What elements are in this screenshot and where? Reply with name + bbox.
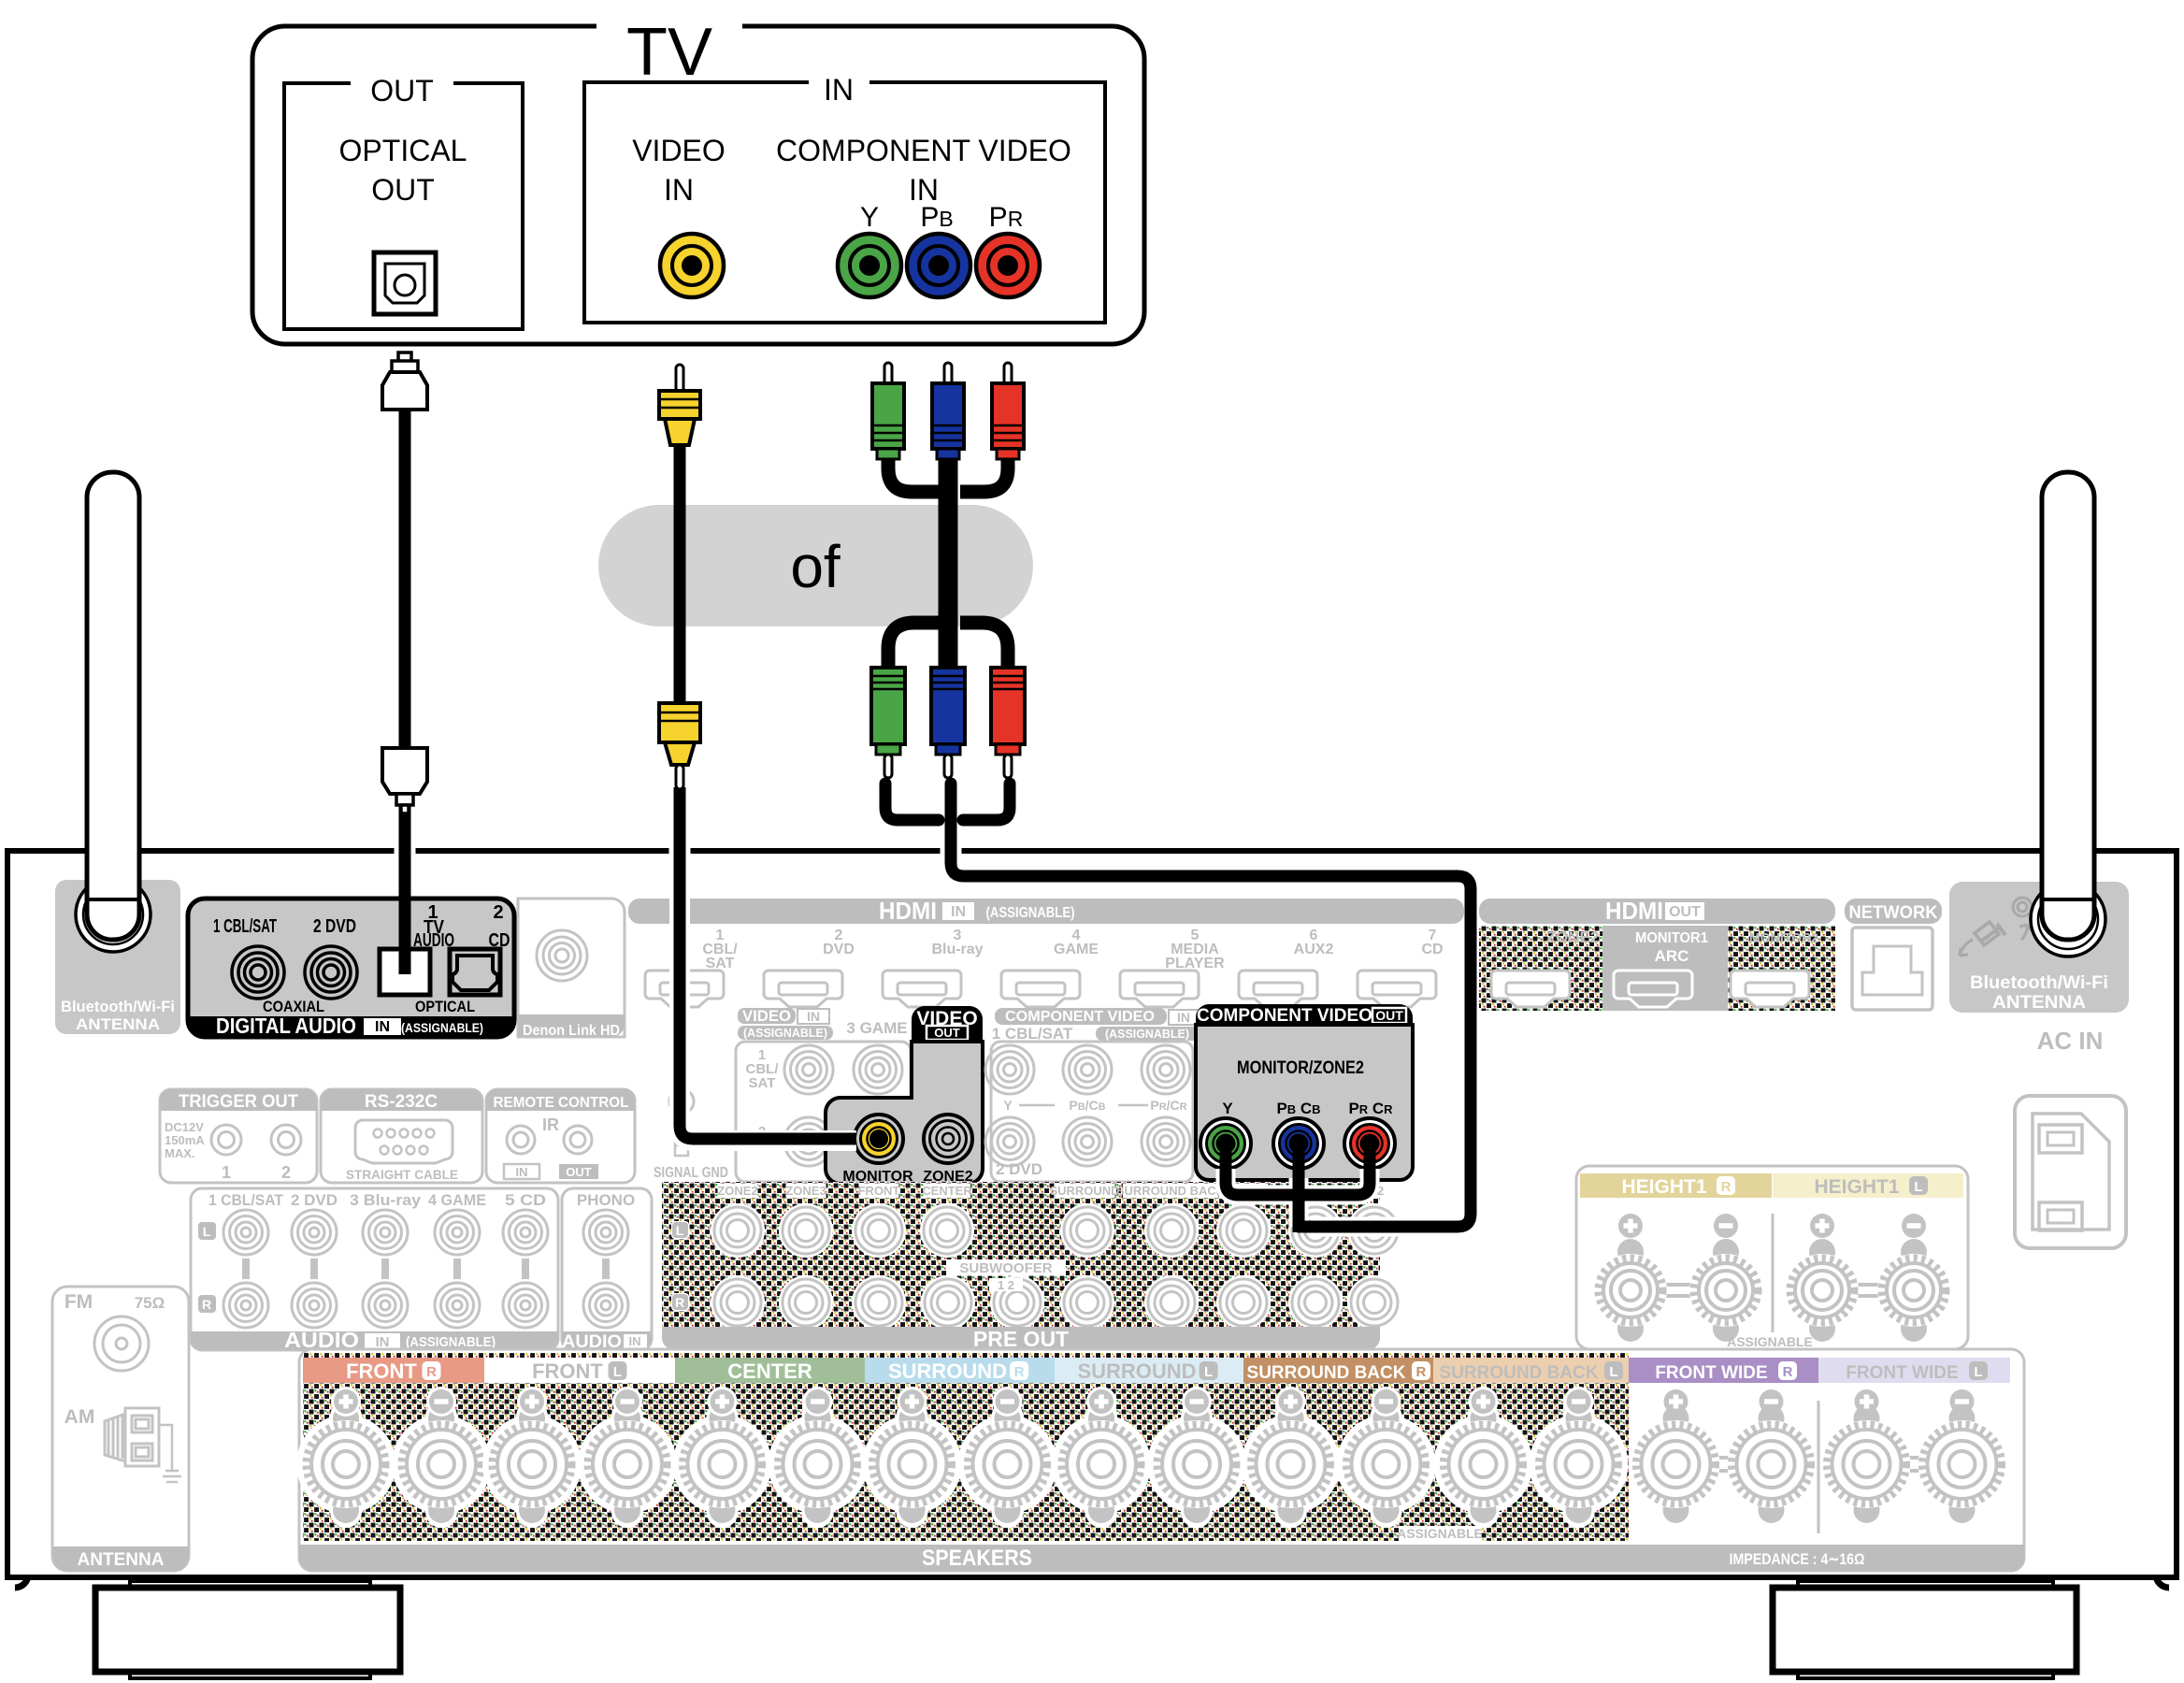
svg-text:HEIGHT1: HEIGHT1 xyxy=(1621,1176,1706,1198)
svg-text:2: 2 xyxy=(281,1163,291,1182)
svg-text:(ASSIGNABLE): (ASSIGNABLE) xyxy=(1105,1027,1189,1041)
svg-text:OPTICAL: OPTICAL xyxy=(415,998,475,1015)
svg-text:(ASSIGNABLE): (ASSIGNABLE) xyxy=(406,1334,496,1350)
svg-text:IN: IN xyxy=(664,173,694,207)
svg-text:1 CBL/SAT: 1 CBL/SAT xyxy=(213,916,277,937)
svg-text:L: L xyxy=(1609,1364,1617,1380)
svg-text:(ASSIGNABLE): (ASSIGNABLE) xyxy=(743,1026,827,1040)
svg-text:OUT: OUT xyxy=(566,1165,592,1179)
svg-text:Y: Y xyxy=(1003,1098,1013,1113)
svg-text:FRONT WIDE: FRONT WIDE xyxy=(1655,1363,1767,1383)
svg-text:R: R xyxy=(1783,1364,1793,1380)
svg-text:R: R xyxy=(675,1295,684,1310)
svg-text:CENTER: CENTER xyxy=(727,1359,812,1383)
svg-text:Bluetooth/Wi-Fi: Bluetooth/Wi-Fi xyxy=(1970,973,2108,993)
svg-text:SURROUND: SURROUND xyxy=(1049,1184,1119,1198)
svg-text:L: L xyxy=(203,1224,211,1239)
svg-text:IMPEDANCE : 4∼16Ω: IMPEDANCE : 4∼16Ω xyxy=(1730,1550,1865,1568)
svg-text:CD: CD xyxy=(1421,942,1443,957)
svg-text:AC IN: AC IN xyxy=(2037,1027,2104,1055)
svg-text:IN: IN xyxy=(807,1009,820,1024)
svg-text:ZONE3: ZONE3 xyxy=(785,1184,826,1198)
svg-text:OUT: OUT xyxy=(1669,904,1701,920)
svg-text:IR: IR xyxy=(542,1115,559,1134)
svg-text:L: L xyxy=(1974,1364,1982,1380)
svg-text:IN: IN xyxy=(376,1334,390,1350)
svg-text:1 2: 1 2 xyxy=(998,1278,1014,1292)
svg-text:(ASSIGNABLE): (ASSIGNABLE) xyxy=(401,1020,483,1035)
svg-text:AM: AM xyxy=(65,1406,95,1428)
svg-text:PB: PB xyxy=(920,202,953,233)
svg-text:L: L xyxy=(613,1364,622,1380)
svg-text:R: R xyxy=(1416,1364,1427,1380)
svg-text:MAX.: MAX. xyxy=(165,1146,195,1160)
svg-text:R: R xyxy=(1721,1179,1731,1195)
svg-text:OUT: OUT xyxy=(1375,1008,1403,1023)
svg-text:TV: TV xyxy=(626,15,712,90)
svg-text:SURROUND: SURROUND xyxy=(888,1359,1007,1383)
svg-text:2: 2 xyxy=(493,902,503,923)
svg-text:ARC: ARC xyxy=(1655,947,1689,965)
svg-text:AUX2: AUX2 xyxy=(1294,942,1334,957)
svg-text:PR: PR xyxy=(989,202,1024,233)
svg-text:REMOTE CONTROL: REMOTE CONTROL xyxy=(494,1095,629,1111)
svg-text:75Ω: 75Ω xyxy=(135,1294,165,1312)
svg-text:L: L xyxy=(1914,1179,1922,1195)
svg-text:SURROUND BACK: SURROUND BACK xyxy=(1440,1363,1599,1383)
svg-text:150mA: 150mA xyxy=(165,1133,205,1147)
svg-text:PRE OUT: PRE OUT xyxy=(973,1327,1069,1351)
svg-text:2 DVD: 2 DVD xyxy=(996,1160,1042,1178)
svg-text:HDMI: HDMI xyxy=(1605,897,1663,925)
svg-text:FRONT: FRONT xyxy=(346,1359,417,1383)
svg-text:DC12V: DC12V xyxy=(165,1120,204,1134)
svg-text:Denon Link HD: Denon Link HD xyxy=(523,1023,620,1039)
svg-text:ANTENNA: ANTENNA xyxy=(1992,993,2086,1013)
svg-text:FRONT WIDE: FRONT WIDE xyxy=(1846,1363,1958,1383)
svg-text:of: of xyxy=(790,533,841,600)
svg-text:PB CB: PB CB xyxy=(1276,1100,1320,1117)
svg-text:1: 1 xyxy=(222,1163,231,1182)
svg-text:VIDEO: VIDEO xyxy=(632,134,726,167)
svg-text:3 GAME: 3 GAME xyxy=(846,1019,907,1037)
svg-text:IN: IN xyxy=(375,1019,390,1035)
svg-text:SAT: SAT xyxy=(706,956,735,971)
svg-text:TRIGGER OUT: TRIGGER OUT xyxy=(179,1092,298,1112)
svg-text:COMPONENT VIDEO: COMPONENT VIDEO xyxy=(1197,1006,1372,1026)
svg-text:FRONT: FRONT xyxy=(858,1184,900,1198)
svg-text:HDMI: HDMI xyxy=(879,897,937,925)
svg-text:R: R xyxy=(1014,1364,1025,1380)
svg-text:SURROUND: SURROUND xyxy=(1077,1359,1196,1383)
svg-text:COMPONENT VIDEO: COMPONENT VIDEO xyxy=(776,134,1071,167)
svg-text:ASSIGNABLE: ASSIGNABLE xyxy=(1397,1526,1483,1541)
svg-text:SURROUND BACK: SURROUND BACK xyxy=(1116,1184,1226,1198)
svg-text:1 CBL/SAT: 1 CBL/SAT xyxy=(992,1025,1073,1043)
svg-text:GAME: GAME xyxy=(1054,942,1099,957)
svg-text:DIGITAL AUDIO: DIGITAL AUDIO xyxy=(216,1014,356,1038)
svg-text:(ASSIGNABLE): (ASSIGNABLE) xyxy=(986,905,1075,921)
svg-text:MONITOR2: MONITOR2 xyxy=(1749,930,1818,946)
svg-text:ZONE2: ZONE2 xyxy=(1546,928,1600,946)
svg-text:R: R xyxy=(426,1364,437,1380)
svg-text:ANTENNA: ANTENNA xyxy=(78,1550,165,1570)
svg-text:OPTICAL: OPTICAL xyxy=(339,134,467,167)
svg-text:NETWORK: NETWORK xyxy=(1849,903,1938,923)
svg-text:CENTER: CENTER xyxy=(922,1184,972,1198)
svg-text:MONITOR/ZONE2: MONITOR/ZONE2 xyxy=(1237,1058,1364,1078)
svg-text:Y: Y xyxy=(1222,1100,1233,1117)
svg-text:SURROUND BACK: SURROUND BACK xyxy=(1247,1363,1406,1383)
svg-text:L: L xyxy=(1204,1364,1213,1380)
svg-text:Bluetooth/Wi-Fi: Bluetooth/Wi-Fi xyxy=(61,998,175,1015)
svg-text:DVD: DVD xyxy=(823,942,855,957)
svg-text:RS-232C: RS-232C xyxy=(365,1092,438,1112)
svg-text:IN: IN xyxy=(824,73,854,107)
svg-text:HEIGHT1: HEIGHT1 xyxy=(1814,1176,1899,1198)
svg-text:ANTENNA: ANTENNA xyxy=(76,1015,160,1033)
svg-text:COMPONENT VIDEO: COMPONENT VIDEO xyxy=(1005,1009,1155,1025)
svg-text:IN: IN xyxy=(516,1165,528,1179)
svg-text:ASSIGNABLE: ASSIGNABLE xyxy=(1727,1334,1813,1349)
svg-text:SAT: SAT xyxy=(749,1075,776,1091)
svg-text:2 DVD: 2 DVD xyxy=(313,916,356,937)
svg-text:SUBWOOFER: SUBWOOFER xyxy=(959,1260,1052,1276)
svg-text:STRAIGHT CABLE: STRAIGHT CABLE xyxy=(346,1167,458,1182)
svg-text:R: R xyxy=(202,1297,211,1312)
svg-text:FRONT: FRONT xyxy=(532,1359,603,1383)
svg-text:MONITOR1: MONITOR1 xyxy=(1635,930,1708,946)
svg-text:SIGNAL GND: SIGNAL GND xyxy=(654,1165,728,1181)
svg-text:OUT: OUT xyxy=(371,173,435,207)
svg-text:ZONE2: ZONE2 xyxy=(717,1184,757,1198)
svg-text:Y: Y xyxy=(860,202,879,233)
svg-text:SPEAKERS: SPEAKERS xyxy=(922,1546,1032,1571)
svg-text:IN: IN xyxy=(951,904,966,920)
svg-text:Blu-ray: Blu-ray xyxy=(931,942,983,957)
svg-text:IN: IN xyxy=(1177,1010,1190,1025)
svg-text:FM: FM xyxy=(65,1291,93,1313)
svg-text:PR CR: PR CR xyxy=(1348,1100,1393,1117)
svg-text:VIDEO: VIDEO xyxy=(742,1007,791,1025)
svg-text:OUT: OUT xyxy=(934,1026,960,1040)
svg-text:OUT: OUT xyxy=(370,74,434,108)
svg-text:IN: IN xyxy=(629,1334,641,1348)
svg-text:L: L xyxy=(676,1223,684,1238)
svg-text:PLAYER: PLAYER xyxy=(1165,956,1225,971)
